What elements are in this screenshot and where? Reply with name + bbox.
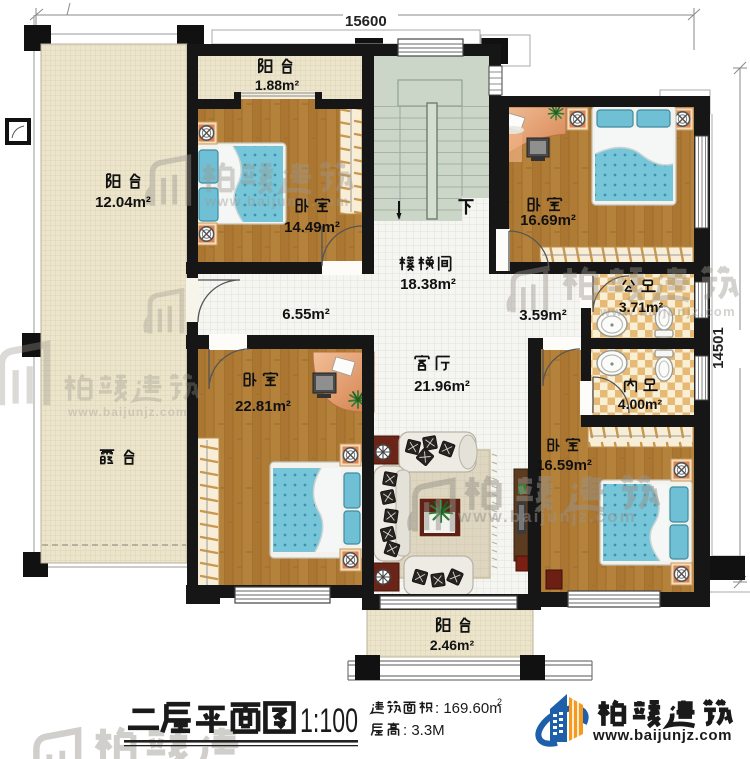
svg-text:18.38m²: 18.38m²	[400, 276, 456, 293]
svg-text:: 3.3M: : 3.3M	[403, 722, 445, 739]
svg-text:14501: 14501	[710, 327, 727, 369]
svg-text:1:100: 1:100	[300, 702, 358, 740]
svg-text:16.69m²: 16.69m²	[520, 212, 576, 229]
svg-text:2.46m²: 2.46m²	[430, 637, 475, 653]
svg-text:www.baijunjz.com: www.baijunjz.com	[67, 405, 188, 419]
svg-text:: 169.60m: : 169.60m	[435, 700, 502, 717]
svg-text:22.81m²: 22.81m²	[235, 398, 291, 415]
svg-text:www.baijunjz.com: www.baijunjz.com	[592, 727, 732, 744]
svg-text:21.96m²: 21.96m²	[414, 378, 470, 395]
svg-text:12.04m²: 12.04m²	[95, 194, 151, 211]
svg-text:3.71m²: 3.71m²	[619, 299, 664, 315]
svg-text:1.88m²: 1.88m²	[255, 77, 300, 93]
svg-text:4.00m²: 4.00m²	[618, 396, 663, 412]
svg-text:6.55m²: 6.55m²	[282, 306, 330, 323]
svg-text:www.baijunjz.com: www.baijunjz.com	[204, 193, 350, 209]
svg-text:14.49m²: 14.49m²	[284, 219, 340, 236]
svg-text:www.baijunjz.com: www.baijunjz.com	[457, 507, 637, 526]
svg-text:15600: 15600	[345, 13, 387, 30]
svg-text:2: 2	[497, 697, 502, 707]
svg-text:3.59m²: 3.59m²	[519, 307, 567, 324]
svg-text:16.59m²: 16.59m²	[536, 457, 592, 474]
